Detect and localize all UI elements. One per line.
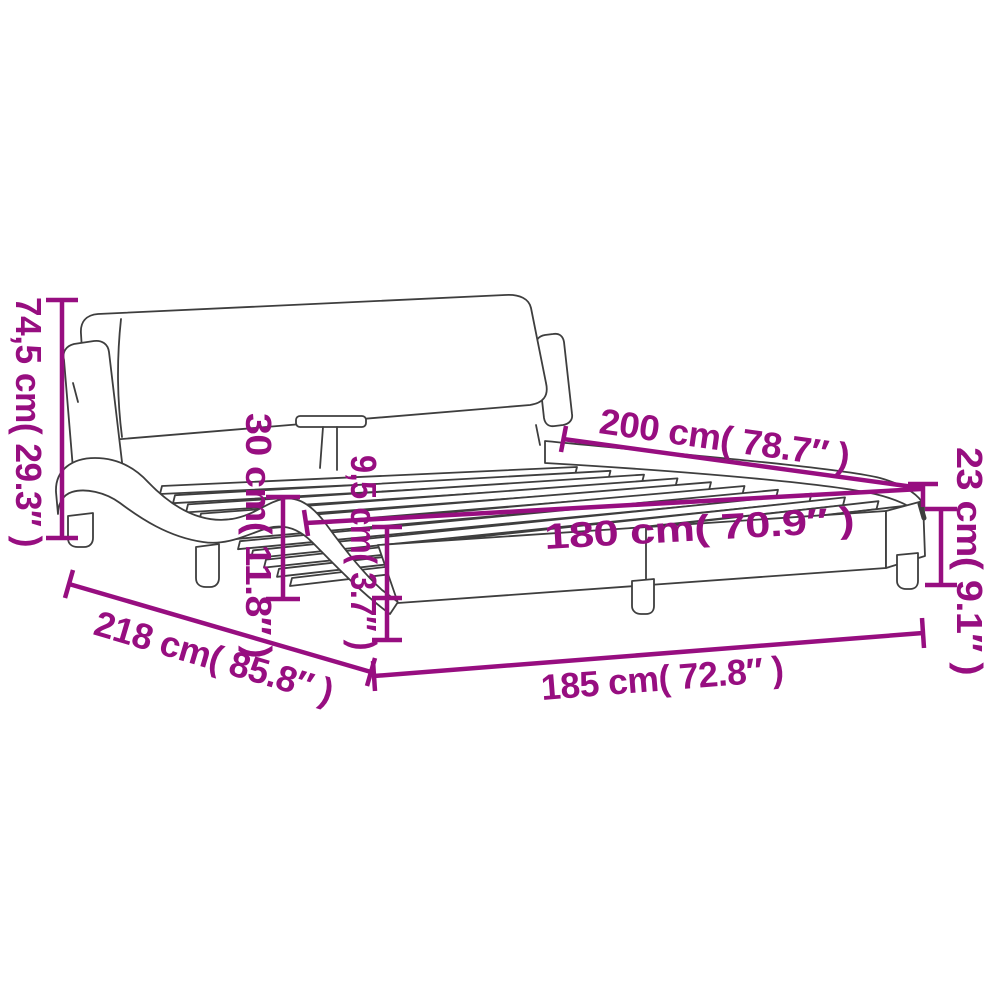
frame-height-label: 23 cm( 9.1″ )	[949, 447, 990, 675]
dimension-frame-height: 23 cm( 9.1″ )	[925, 447, 990, 675]
bed-frame-diagram: 74,5 cm( 29.3″ ) 30 cm( 11.8″ ) 9,5 cm( …	[0, 0, 1000, 1000]
dimension-total-width: 185 cm( 72.8″ )	[373, 618, 924, 708]
headboard-to-slats-label: 30 cm( 11.8″ )	[238, 413, 279, 658]
leg-front-center	[632, 579, 654, 614]
diagram-canvas: 74,5 cm( 29.3″ ) 30 cm( 11.8″ ) 9,5 cm( …	[0, 0, 1000, 1000]
dimension-total-height: 74,5 cm( 29.3″ )	[8, 297, 78, 547]
leg-front-right	[897, 553, 918, 589]
leg-back-left	[68, 513, 93, 547]
total-width-label: 185 cm( 72.8″ )	[539, 648, 784, 708]
leg-front-left	[196, 544, 219, 587]
total-height-label: 74,5 cm( 29.3″ )	[8, 297, 49, 547]
cushion-support-right	[536, 425, 540, 445]
total-length-label: 218 cm( 85.8″ )	[90, 602, 338, 711]
support-bar	[296, 416, 366, 427]
rail-thickness-label: 9,5 cm( 3.7″ )	[343, 455, 384, 650]
support-stem-left	[320, 427, 323, 468]
dimension-total-length: 218 cm( 85.8″ )	[65, 570, 375, 712]
